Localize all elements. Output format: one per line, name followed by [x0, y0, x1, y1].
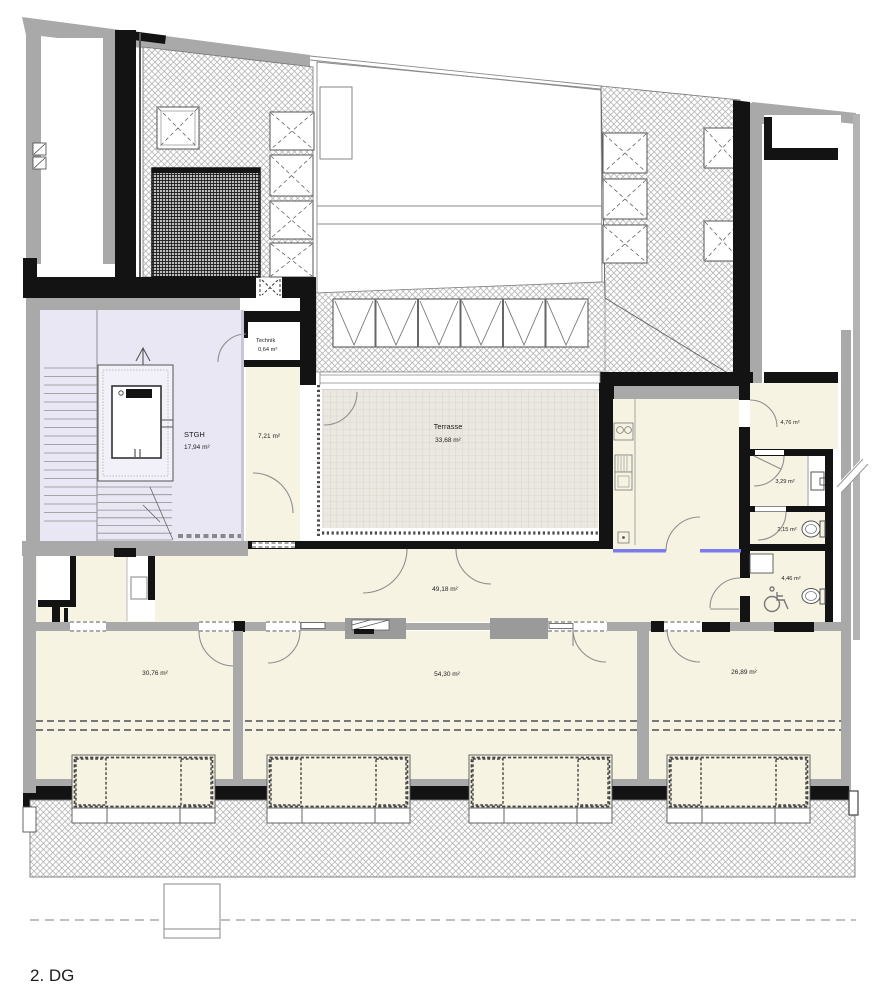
svg-text:0,64 m²: 0,64 m²	[258, 347, 277, 353]
svg-text:2,15 m²: 2,15 m²	[777, 527, 796, 533]
svg-text:4,46 m²: 4,46 m²	[781, 576, 800, 582]
svg-text:54,30 m²: 54,30 m²	[434, 671, 460, 678]
svg-text:17,94 m²: 17,94 m²	[184, 444, 210, 451]
svg-text:30,76 m²: 30,76 m²	[142, 670, 168, 677]
svg-text:26,89 m²: 26,89 m²	[731, 669, 757, 676]
svg-text:33,68 m²: 33,68 m²	[435, 437, 461, 444]
svg-text:3,29 m²: 3,29 m²	[775, 479, 794, 485]
svg-text:49,18 m²: 49,18 m²	[432, 586, 458, 593]
svg-text:Technik: Technik	[256, 338, 275, 344]
svg-text:STGH: STGH	[184, 430, 205, 439]
svg-text:2. DG: 2. DG	[30, 966, 74, 985]
svg-text:7,21 m²: 7,21 m²	[258, 433, 281, 440]
svg-text:4,76 m²: 4,76 m²	[780, 420, 799, 426]
svg-text:Terrasse: Terrasse	[434, 422, 463, 431]
